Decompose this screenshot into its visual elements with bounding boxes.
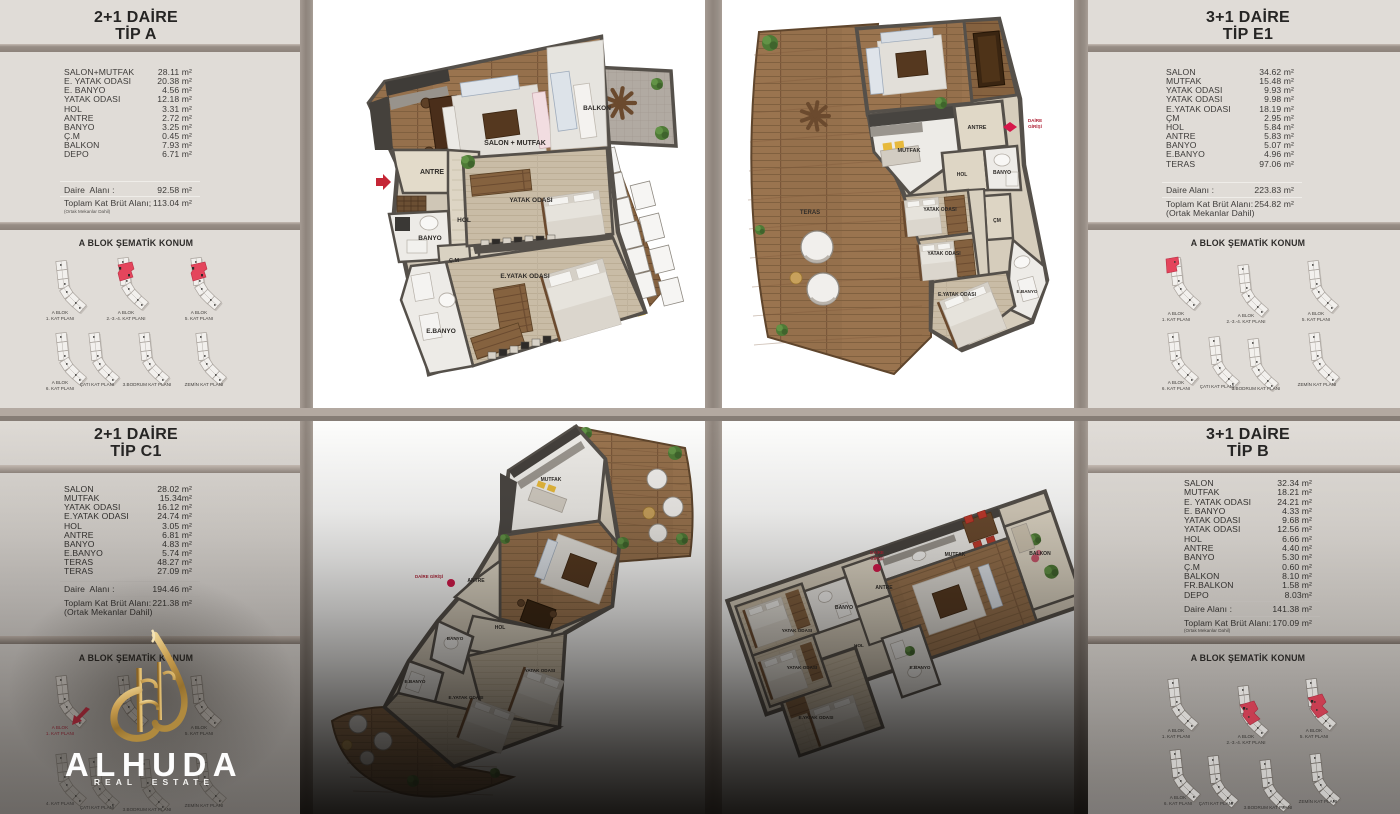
svg-text:BANYO: BANYO [447,636,464,641]
svg-text:ANTRE: ANTRE [968,125,987,131]
svg-text:SALON + MUTFAK: SALON + MUTFAK [484,140,546,147]
svg-text:BANYO: BANYO [418,235,441,242]
svg-text:BANYO: BANYO [993,170,1011,176]
svg-text:MUTFAK: MUTFAK [898,148,921,154]
svg-text:ANTRE: ANTRE [875,585,893,591]
svg-text:E.BANYO: E.BANYO [1017,289,1038,294]
svg-text:ÇM: ÇM [993,218,1001,224]
svg-text:E.YATAK ODASI: E.YATAK ODASI [500,273,550,280]
svg-text:BALKON: BALKON [583,105,611,112]
svg-text:DAİRE: DAİRE [870,550,884,555]
svg-text:YATAK ODASI: YATAK ODASI [509,197,552,204]
svg-text:E.YATAK ODASI: E.YATAK ODASI [449,695,484,700]
svg-text:HOL: HOL [457,217,471,224]
svg-text:YATAK ODASI: YATAK ODASI [927,251,961,257]
svg-text:YATAK ODASI: YATAK ODASI [923,207,957,213]
svg-text:HOL: HOL [854,643,864,648]
svg-text:MUTFAK: MUTFAK [541,477,562,483]
svg-text:YATAK ODASI: YATAK ODASI [782,628,813,633]
svg-text:E.YATAK ODASI: E.YATAK ODASI [799,715,834,720]
svg-text:E.BANYO: E.BANYO [405,679,426,684]
svg-text:TERAS: TERAS [800,210,820,216]
svg-text:GİRİŞİ: GİRİŞİ [1028,123,1042,129]
svg-text:ANTRE: ANTRE [467,578,485,584]
svg-text:YATAK ODASI: YATAK ODASI [787,665,818,670]
svg-text:E.BANYO: E.BANYO [910,665,931,670]
svg-text:GİRİŞİ: GİRİŞİ [870,556,883,561]
svg-text:YATAK ODASI: YATAK ODASI [525,668,556,673]
svg-text:HOL: HOL [957,172,968,178]
svg-text:DAİRE GİRİŞİ: DAİRE GİRİŞİ [415,574,443,579]
svg-text:DAİRE: DAİRE [1028,117,1042,123]
svg-text:Ç.M: Ç.M [449,258,460,264]
svg-text:BANYO: BANYO [835,605,853,611]
svg-text:E.BANYO: E.BANYO [426,328,456,335]
svg-text:MUTFAK: MUTFAK [945,552,966,558]
svg-text:ANTRE: ANTRE [420,169,444,176]
svg-text:E.YATAK ODASI: E.YATAK ODASI [938,292,977,298]
svg-text:HOL: HOL [495,625,506,631]
svg-text:BALKON: BALKON [1029,551,1051,557]
